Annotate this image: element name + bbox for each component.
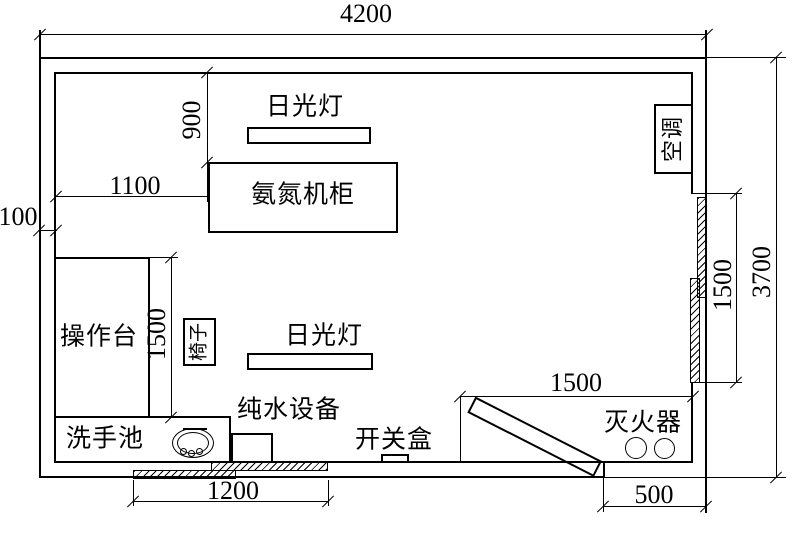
- lamp-top-box: [247, 127, 371, 144]
- dim-1200-ext-left: [133, 480, 134, 506]
- dim-1100-text: 1100: [109, 173, 160, 199]
- dim-1200-text: 1200: [207, 478, 259, 504]
- lamp-bottom-box: [247, 353, 373, 370]
- pure-water-box: [231, 433, 273, 463]
- wall-outer-left: [39, 30, 41, 478]
- dim-100-text: 100: [0, 204, 38, 230]
- wall-outer-top: [39, 57, 707, 59]
- dim-3700-ext-bottom: [605, 477, 786, 478]
- fire-extinguisher-label: 灭火器: [604, 411, 682, 436]
- sink-drain-2: [188, 450, 195, 457]
- lamp-bottom-label: 日光灯: [285, 324, 363, 349]
- dim-1500b-ext: [460, 396, 461, 462]
- dim-3700-text: 3700: [749, 246, 775, 298]
- wall-outer-bottom: [39, 476, 605, 478]
- dim-1500l-text: 1500: [144, 308, 170, 360]
- dim-4200-text: 4200: [340, 1, 392, 27]
- dim-500-text: 500: [635, 482, 674, 508]
- dim-1500l-ext-top: [149, 257, 178, 258]
- lamp-top-label: 日光灯: [266, 95, 344, 120]
- operation-table-label: 操作台: [60, 325, 138, 350]
- sink-drain-3: [196, 448, 203, 455]
- dim-1500r-text: 1500: [710, 259, 736, 311]
- sink-label: 洗手池: [66, 427, 144, 452]
- wall-inner-top: [54, 72, 693, 74]
- dim-3700-line: [776, 57, 777, 477]
- dim-1500l-line: [171, 257, 172, 417]
- dim-4200-line: [39, 34, 707, 35]
- window-right-pane-inner: [690, 278, 700, 383]
- chair-label: 椅子: [190, 323, 209, 361]
- switch-box: [381, 454, 409, 463]
- dim-1500l-ext-bottom: [149, 416, 178, 417]
- fire-extinguisher-2: [654, 438, 675, 459]
- air-conditioner-label: 空调: [662, 116, 684, 162]
- wall-inner-right-lower: [691, 382, 693, 462]
- floor-plan-canvas: 氨氮机柜 日光灯 日光灯 空调 操作台 椅子 洗手池 纯水设备 开关盒 灭火器 …: [0, 0, 805, 545]
- fire-extinguisher-1: [625, 437, 647, 459]
- dim-900-line: [207, 72, 208, 202]
- pure-water-label: 纯水设备: [237, 398, 341, 423]
- door-jamb: [603, 461, 605, 478]
- sink-deck-line: [183, 428, 207, 430]
- dim-1500b-text: 1500: [550, 370, 602, 396]
- cabinet-label: 氨氮机柜: [251, 183, 355, 208]
- switch-box-label: 开关盒: [355, 428, 433, 453]
- dim-900-text: 900: [179, 101, 205, 140]
- dim-1200-ext-right: [328, 480, 329, 506]
- sink-drain-1: [180, 448, 187, 455]
- door-leaf: [467, 397, 602, 478]
